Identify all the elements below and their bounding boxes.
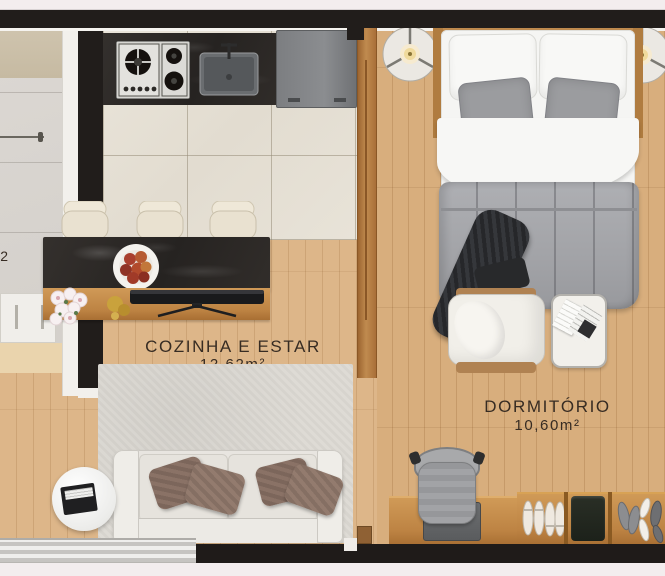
refrigerator	[276, 30, 357, 108]
shoe-rack-divider	[608, 492, 612, 545]
bed-duvet-seam	[441, 208, 637, 211]
exterior-bottom	[0, 563, 665, 576]
gas-cooktop	[116, 41, 190, 99]
shoes-assorted	[614, 494, 664, 544]
room-divider	[357, 24, 377, 378]
bar-stool	[58, 201, 112, 241]
cabinet-handle	[15, 305, 18, 329]
sliding-window	[0, 538, 196, 564]
adjacent-room-counter	[0, 28, 62, 78]
shoe-rack-divider	[564, 492, 568, 545]
nightstand-lamp	[380, 24, 440, 84]
refrigerator-handle	[334, 98, 346, 102]
fruit-bowl	[111, 242, 161, 292]
gold-decor	[103, 292, 133, 322]
refrigerator-handle	[288, 98, 300, 102]
sofa-armrest	[113, 450, 139, 543]
top-wall	[0, 10, 665, 28]
tv	[130, 288, 264, 318]
armchair-wood-trim	[456, 362, 536, 373]
bedroom-label: DORMITÓRIO	[455, 396, 640, 417]
folded-clothes	[571, 496, 605, 541]
wall-stub-bottom	[357, 526, 372, 544]
living-room-label: COZINHA E ESTAR	[133, 336, 333, 357]
kitchen-sink	[196, 39, 262, 101]
bedroom-area: 10,60m²	[455, 417, 640, 436]
floor-plan: 2	[0, 0, 665, 576]
desk-chair-seat	[418, 462, 476, 524]
towel-bar-knob	[38, 132, 43, 142]
flowers	[46, 286, 100, 326]
adjacent-room-floor-beige	[0, 343, 62, 373]
room-divider-seam	[365, 60, 367, 320]
bottom-wall	[196, 544, 665, 563]
shoes-slippers	[520, 496, 564, 542]
door-jamb-notch	[344, 538, 357, 551]
exterior-top	[0, 0, 665, 10]
adjacent-room-partial-label: 2	[0, 248, 12, 266]
bar-stool	[133, 201, 187, 241]
bar-stool	[206, 201, 260, 241]
